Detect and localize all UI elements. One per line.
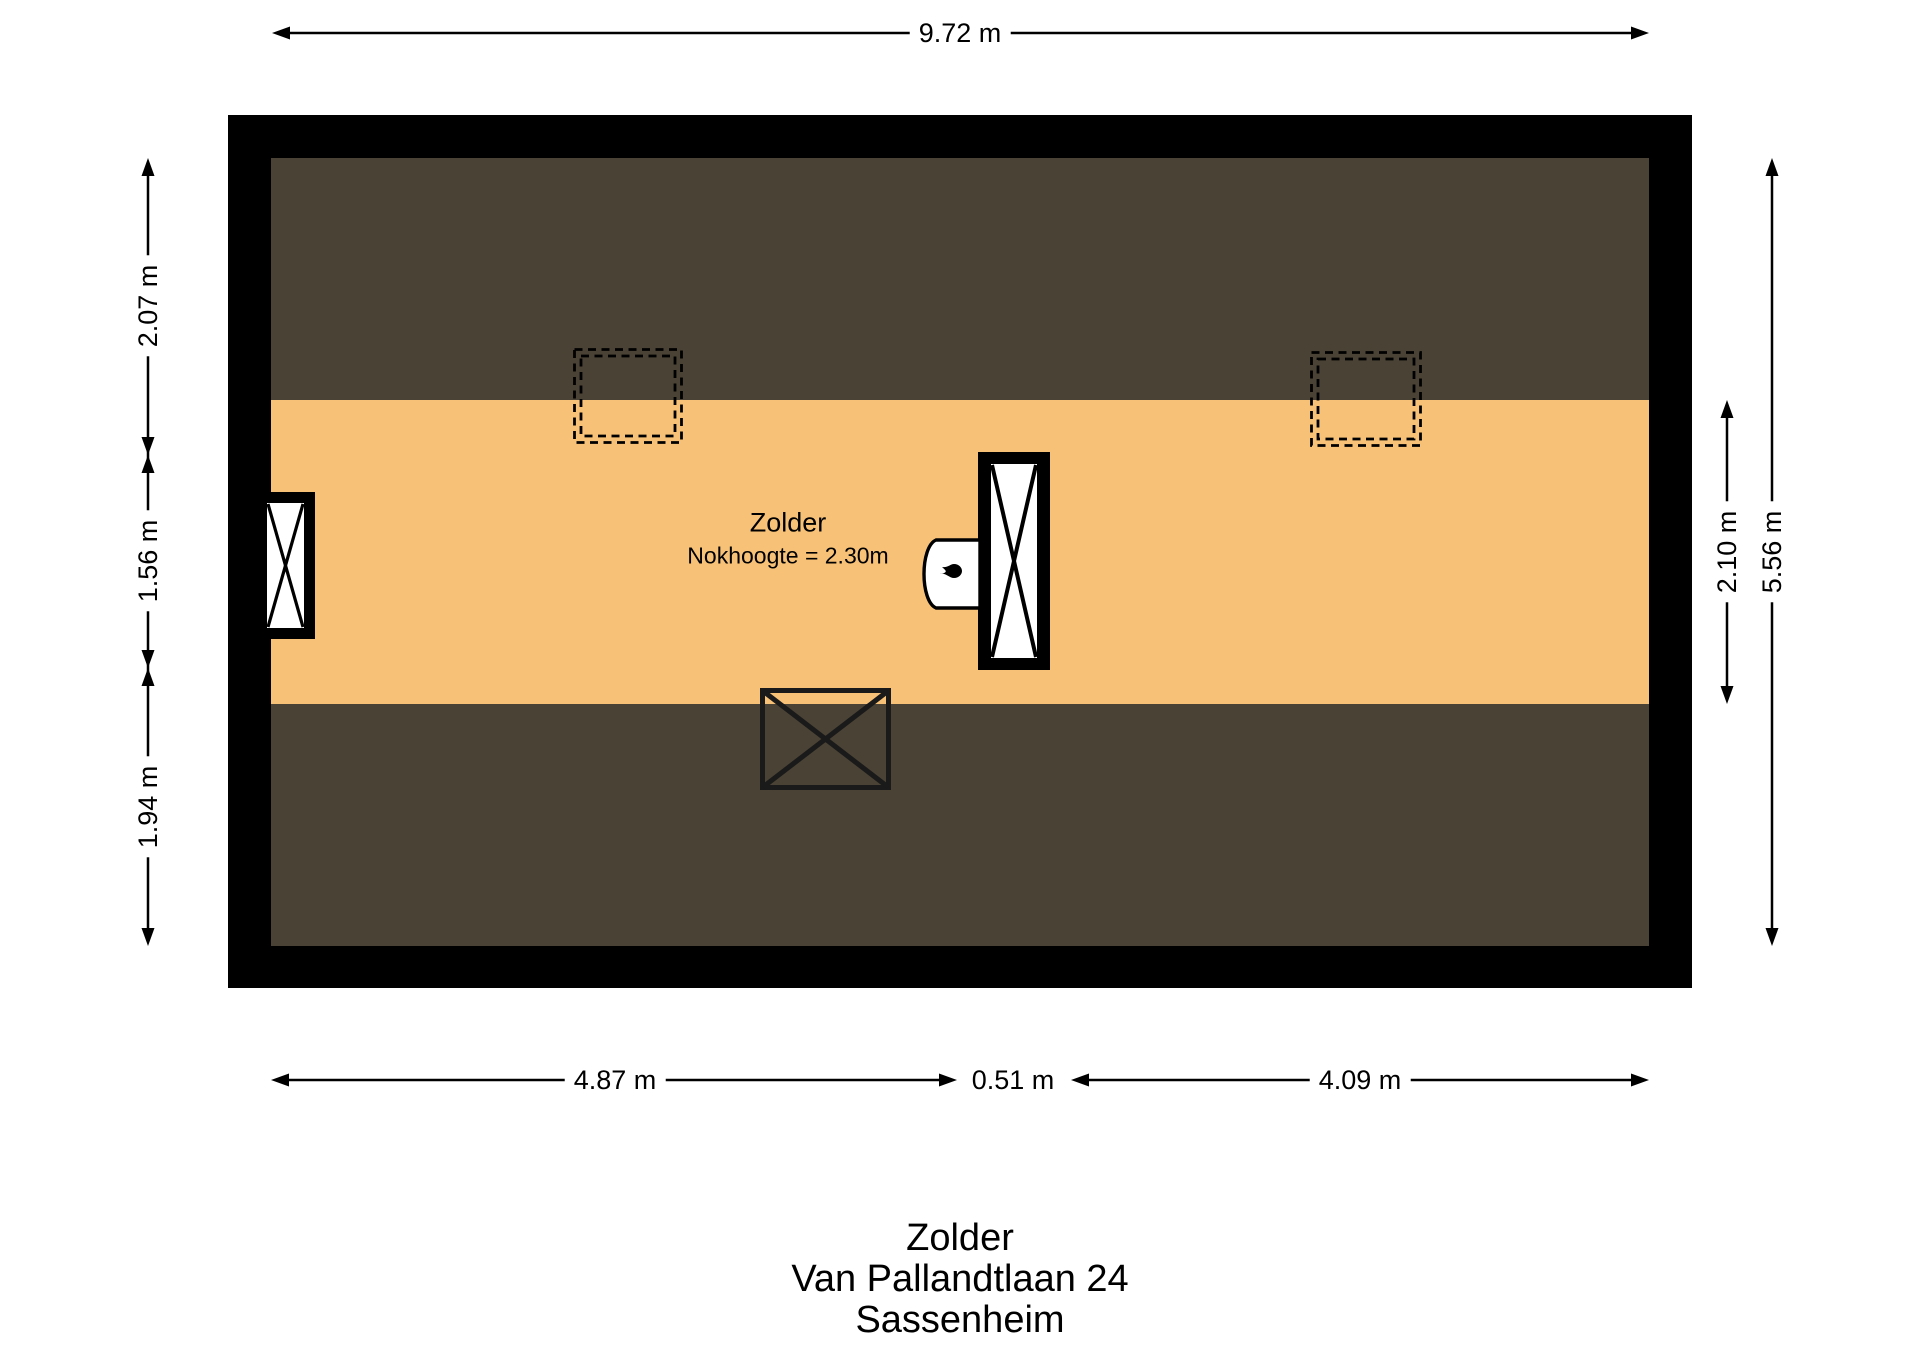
dimension-lines: [0, 0, 1920, 1358]
dim-left-bottom: 1.94 m: [133, 757, 163, 858]
dim-right-inner: 2.10 m: [1712, 502, 1742, 603]
room-name-label: Zolder: [750, 508, 827, 539]
dim-right-outer: 5.56 m: [1757, 502, 1787, 603]
ridge-height-label: Nokhoogte = 2.30m: [687, 543, 888, 570]
dim-bottom-right: 4.09 m: [1310, 1065, 1411, 1095]
dim-bottom-middle: 0.51 m: [963, 1065, 1064, 1095]
dim-bottom-left: 4.87 m: [565, 1065, 666, 1095]
title-city: Sassenheim: [0, 1300, 1920, 1341]
dim-left-middle: 1.56 m: [133, 511, 163, 612]
floorplan-page: 9.72 m 2.07 m 1.56 m 1.94 m 2.10 m 5.56 …: [0, 0, 1920, 1358]
dim-top-width: 9.72 m: [910, 18, 1011, 48]
title-address: Van Pallandtlaan 24: [0, 1259, 1920, 1300]
title-room: Zolder: [0, 1218, 1920, 1259]
dim-left-top: 2.07 m: [133, 256, 163, 357]
title-block: Zolder Van Pallandtlaan 24 Sassenheim: [0, 1218, 1920, 1341]
